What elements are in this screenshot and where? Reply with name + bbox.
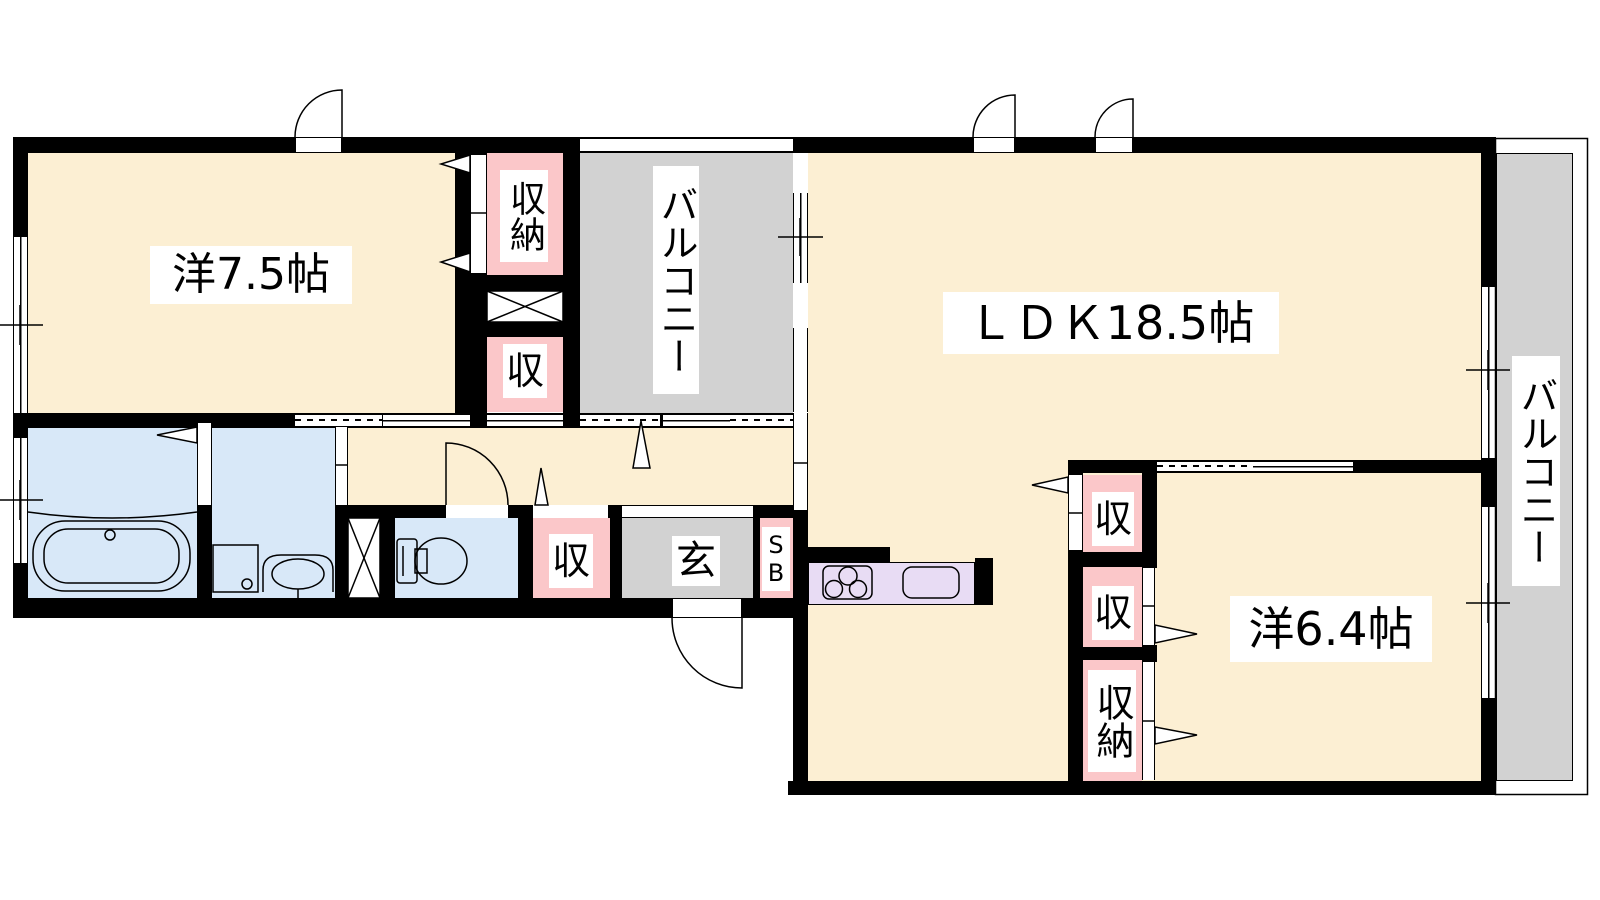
closet-e-mid-label: 収 — [1092, 586, 1134, 640]
entrance-label: 玄 — [672, 536, 720, 586]
entrance-door-arc — [672, 618, 742, 688]
door-arc — [973, 95, 1015, 137]
door-arc — [1095, 99, 1133, 137]
door-triangle-icon — [157, 427, 197, 443]
toilet-icon — [397, 538, 467, 584]
door-triangle-icon — [1155, 727, 1197, 744]
sink-icon — [903, 567, 959, 598]
floorplan-lineart — [0, 0, 1600, 900]
laundry-space-x-icon — [348, 518, 380, 598]
room-label-ldk: ＬＤＫ18.5帖 — [943, 292, 1279, 354]
closet-se-label: 収納 — [1088, 670, 1136, 772]
room-label-western-6-4: 洋6.4帖 — [1230, 596, 1432, 662]
door-triangle-icon — [535, 468, 548, 505]
shoebox-label: SB — [762, 527, 790, 591]
closet-nw-label: 収納 — [500, 170, 548, 262]
closet-hall-label: 収 — [549, 534, 593, 588]
balcony-right-label: バルコニー — [1512, 356, 1560, 586]
closet-w-label: 収 — [503, 344, 547, 398]
floor-plan: 洋7.5帖 収納 収 バルコニー ＬＤＫ18.5帖 バルコニー 洋6.4帖 収 … — [0, 0, 1600, 900]
door-arc — [295, 90, 342, 137]
door-triangle-icon — [1032, 477, 1068, 493]
room-label-western-7-5: 洋7.5帖 — [150, 246, 352, 304]
sliding-door-split — [335, 213, 1155, 721]
door-triangle-icon — [441, 253, 470, 272]
door-triangle-icon — [441, 155, 470, 173]
stove-icon — [823, 566, 872, 599]
balcony-top-label: バルコニー — [653, 166, 699, 394]
door-triangle-icon — [633, 421, 650, 468]
washbasin-icon — [213, 545, 333, 599]
toilet-door-arc — [446, 443, 508, 505]
bathtub-icon — [28, 512, 197, 591]
closet-e-top-label: 収 — [1092, 492, 1134, 546]
door-triangle-icon — [1155, 625, 1197, 643]
pipe-space-x-icon — [487, 291, 563, 322]
